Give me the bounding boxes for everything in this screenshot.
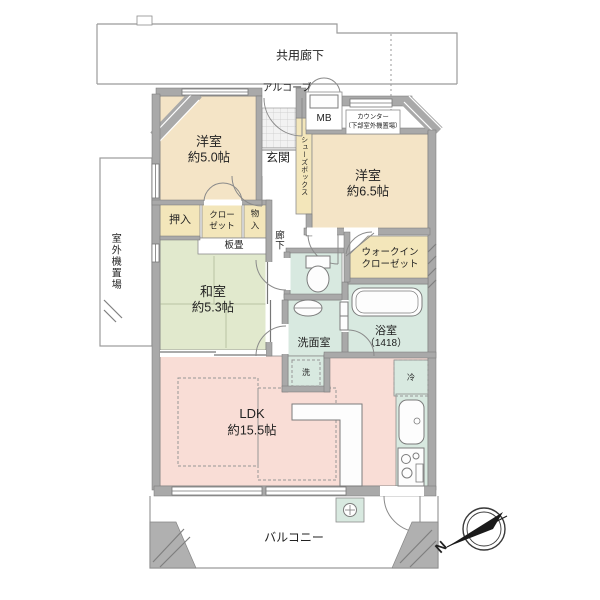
western-room-1-size: 約5.0帖 (188, 151, 230, 164)
alcove-label: アルコーブ (262, 84, 311, 95)
western-room-2-name: 洋室 (355, 169, 381, 183)
ldk-name: LDK (239, 407, 264, 421)
corridor-notch (137, 16, 152, 25)
compass (447, 508, 507, 550)
meter-box-doors (308, 78, 340, 92)
counter-label-line2: （下部室外機置場） (345, 124, 402, 131)
laundry-label: 洗 (302, 369, 310, 377)
bathtub-icon (352, 288, 422, 316)
counter-label-line1: カウンター (357, 115, 388, 122)
floor-plan: 共用廊下 アルコーブ MB カウンター （下部室外機置場） 洋室 約5.0帖 玄… (0, 0, 600, 600)
washroom-label: 洗面室 (298, 338, 331, 350)
western-room-1-name: 洋室 (196, 135, 222, 149)
stove-icon (398, 448, 424, 486)
walkin-closet-label-line1: ウォークイン (361, 248, 418, 258)
japanese-room-name: 和室 (200, 285, 226, 299)
walkin-closet-label-line2: クローゼット (361, 260, 418, 270)
balcony-hatch-right (392, 522, 438, 568)
bathroom-name: 浴室 (375, 326, 397, 338)
western-room-2-size: 約6.5帖 (347, 185, 389, 198)
common-corridor-label: 共用廊下 (276, 50, 324, 63)
closet-label-line1: クロー (209, 211, 235, 220)
closet-label-line2: ゼット (209, 222, 235, 231)
hallway-label: 廊下 (273, 230, 283, 250)
japanese-room-sliding-opening (160, 350, 266, 357)
meter-box-label: MB (317, 114, 332, 125)
balcony-label: バルコニー (264, 532, 324, 545)
storage-label-line2: 入 (251, 222, 260, 231)
toilet-icon (307, 266, 329, 292)
shoe-box-label: シューズボックス (300, 136, 307, 196)
ldk-size: 約15.5帖 (227, 424, 276, 437)
bathroom-size: （1418） (365, 339, 407, 350)
balcony-door-opening (380, 486, 424, 496)
fridge-label: 冷 (407, 374, 415, 382)
chamfer-top-right (406, 100, 438, 132)
kitchen-sink-icon (399, 400, 424, 444)
entrance-label: 玄関 (266, 152, 290, 165)
storage-label-line1: 物 (251, 210, 260, 219)
balcony-hatch-left (150, 522, 196, 568)
wood-board-label: 板畳 (224, 241, 243, 251)
oshiire-label: 押入 (169, 215, 191, 227)
outdoor-unit-space-label: 室外機置場 (109, 233, 120, 291)
japanese-room-size: 約5.3帖 (192, 301, 234, 314)
